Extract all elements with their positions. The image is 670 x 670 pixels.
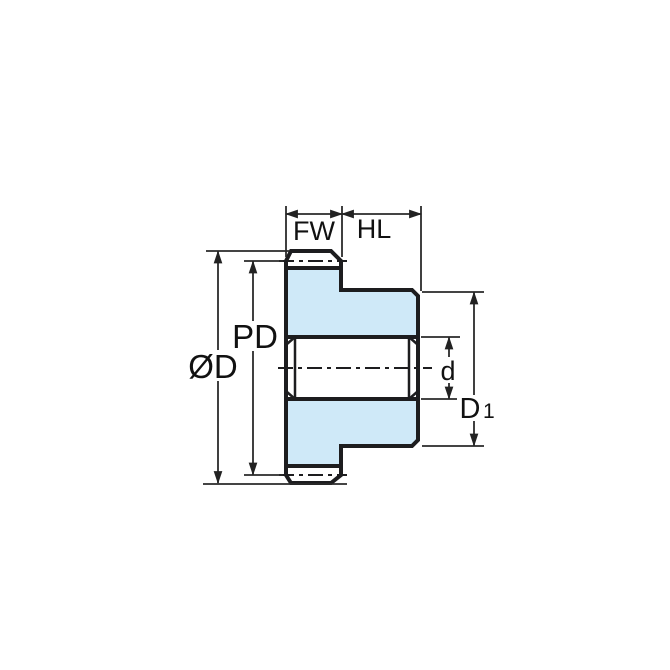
bore-diameter-label: d bbox=[440, 356, 455, 386]
hub-length-label: HL bbox=[357, 214, 392, 244]
gear-tooth-top bbox=[286, 251, 341, 268]
face-width-label: FW bbox=[293, 216, 335, 246]
hub-diameter-label: D bbox=[460, 393, 481, 425]
gear-diagram-canvas: FW HL ØD PD d bbox=[0, 0, 670, 670]
outside-diameter-label: ØD bbox=[188, 348, 238, 385]
gear-dimension-diagram: FW HL ØD PD d bbox=[0, 0, 670, 670]
pitch-diameter-label: PD bbox=[232, 318, 278, 355]
hub-diameter-subscript: 1 bbox=[483, 400, 495, 423]
